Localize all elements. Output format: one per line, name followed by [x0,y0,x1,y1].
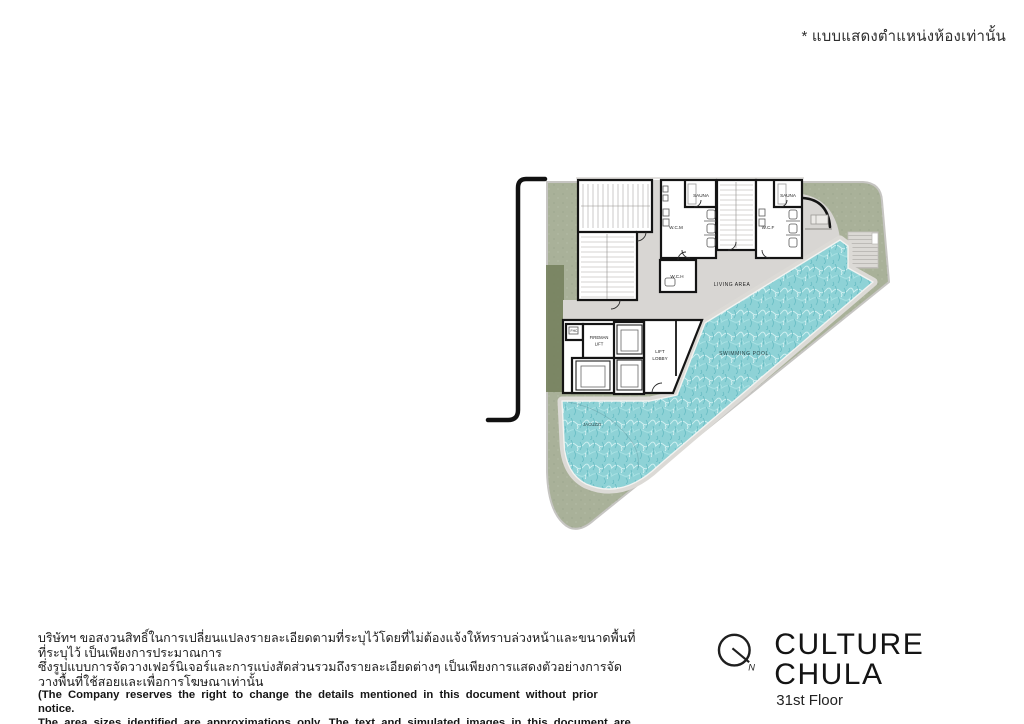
brand-floor: 31st Floor [776,692,1024,709]
planter-strip [546,265,564,392]
disclaimer-line: บริษัทฯ ขอสงวนสิทธิ์ในการเปลี่ยนแปลงรายล… [38,631,638,660]
position-note: * แบบแสดงตำแหน่งห้องเท่านั้น [802,24,1006,48]
label-wcm: W.C.M [669,225,683,230]
floor-plan-svg: SAUNA SAUNA W.C.M W.C.F W.C.H LIVING ARE… [480,110,900,530]
brand-block: N CULTURE CHULA 31st Floor [712,626,1024,709]
label-fhc: FHC [571,329,579,333]
label-fireman-lift-2: LIFT [595,342,604,347]
label-wcf: W.C.F [762,225,775,230]
label-lift-lobby-1: LIFT [655,349,665,354]
north-letter: N [748,663,755,673]
north-compass-icon: N [712,626,760,678]
label-sauna-left: SAUNA [693,193,710,198]
label-sauna-right: SAUNA [780,193,797,198]
disclaimer-line: ซึ่งรูปแบบการจัดวางเฟอร์นิเจอร์และการแบ่… [38,660,638,689]
label-wch: W.C.H [670,274,683,279]
brand-name: CULTURE CHULA [774,630,1024,690]
floor-plan: SAUNA SAUNA W.C.M W.C.F W.C.H LIVING ARE… [480,110,900,530]
label-swimming-pool: SWIMMING POOL [719,351,769,357]
label-living-area: LIVING AREA [714,282,751,288]
label-jacuzzi: JACUZZI [583,422,601,427]
label-lift-lobby-2: LOBBY [652,356,667,361]
brand-text: CULTURE CHULA 31st Floor [774,626,1024,709]
label-fireman-lift-1: FIREMAN [590,335,609,340]
disclaimer-line: (The Company reserves the right to chang… [38,689,638,717]
disclaimer-block: บริษัทฯ ขอสงวนสิทธิ์ในการเปลี่ยนแปลงรายล… [38,631,638,724]
site-boundary-line [488,179,545,420]
brochure-page: * แบบแสดงตำแหน่งห้องเท่านั้น [0,0,1024,724]
disclaimer-line: The area sizes identified are approximat… [38,717,638,724]
